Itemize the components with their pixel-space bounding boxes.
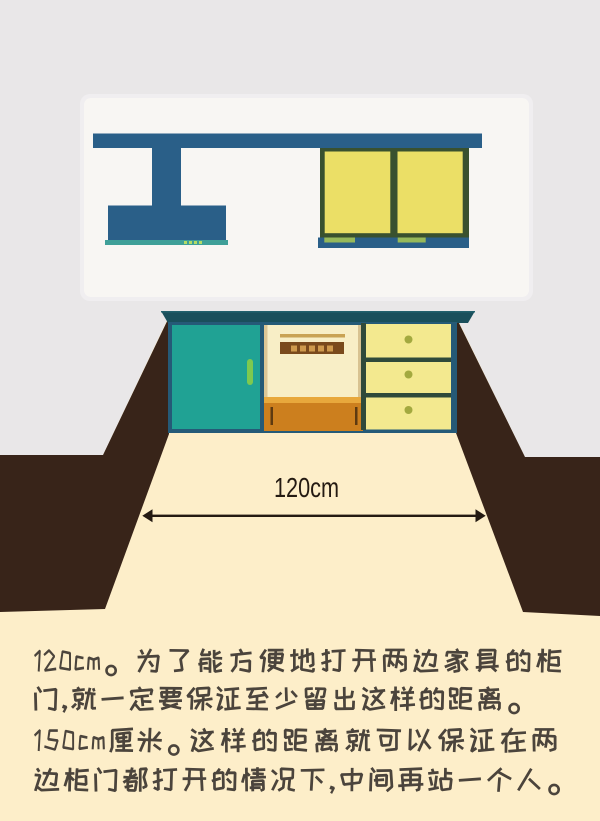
svg-text:120cm: 120cm — [274, 472, 339, 503]
